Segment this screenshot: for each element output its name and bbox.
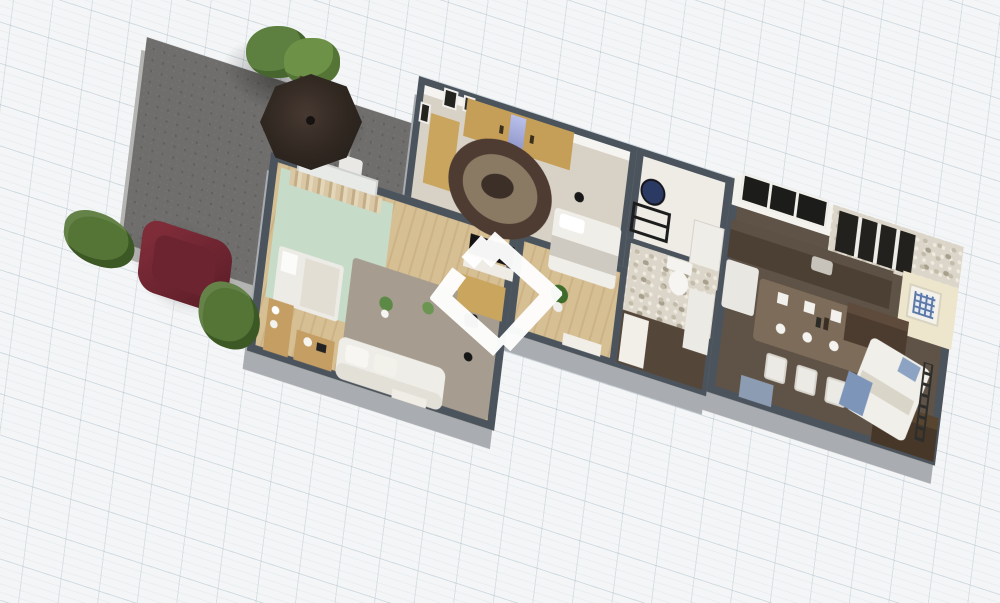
picture-frame bbox=[442, 87, 459, 111]
3d-floorplan-viewport[interactable] bbox=[0, 0, 1000, 603]
fridge bbox=[721, 259, 759, 317]
desk-chair bbox=[464, 313, 478, 328]
